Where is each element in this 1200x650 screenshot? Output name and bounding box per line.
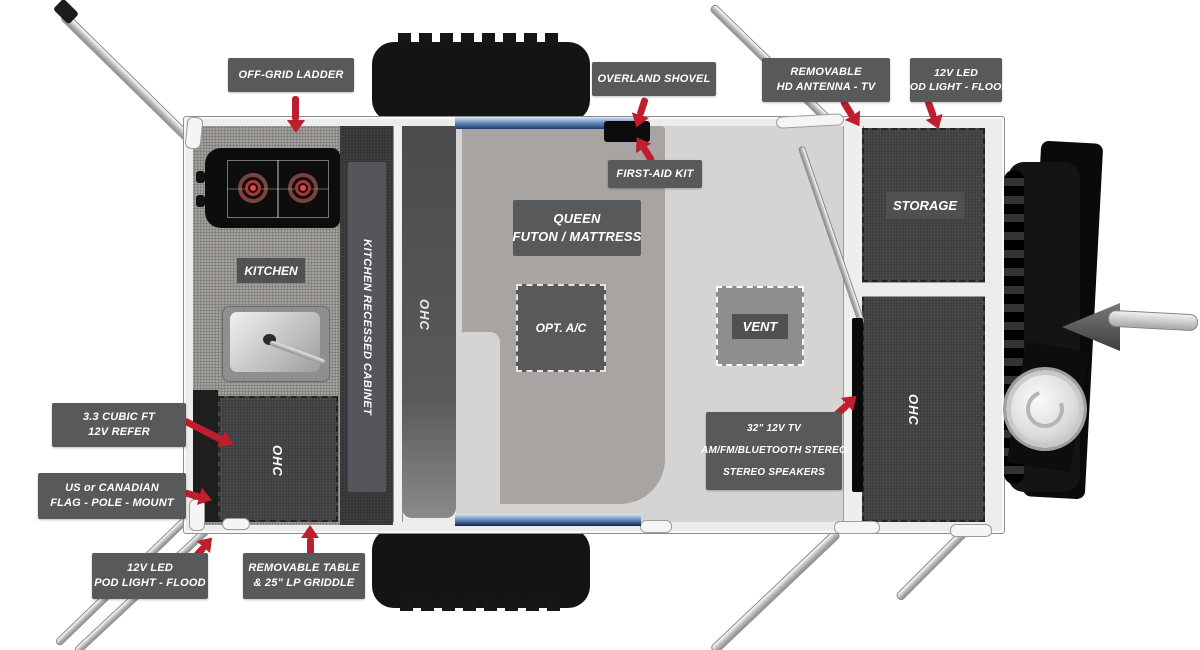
callout-text: 12V REFER (88, 425, 150, 440)
callout-text: REMOVABLE (790, 65, 861, 80)
vent-box: VENT (716, 286, 804, 366)
stove-burner-left (238, 173, 268, 203)
callout-text: HD ANTENNA - TV (777, 80, 876, 95)
arrow-antenna (843, 100, 858, 124)
vent-text: VENT (743, 319, 778, 334)
stove-burner-right (288, 173, 318, 203)
callout-overland-shovel: OVERLAND SHOVEL (592, 62, 716, 96)
ohc-rear-cabinet: OHC (862, 295, 985, 522)
kitchen-recessed-cabinet: KITCHEN RECESSED CABINET (340, 126, 393, 525)
callout-text: 32" 12V TV (747, 418, 801, 440)
callout-removable-antenna: REMOVABLE HD ANTENNA - TV (762, 58, 890, 102)
arrow-overland-shovel (637, 98, 646, 125)
bottom-tire (372, 528, 590, 608)
callout-text: AM/FM/BLUETOOTH STEREO (701, 440, 847, 462)
callout-pod-light-top: 12V LED POD LIGHT - FLOOD (910, 58, 1002, 102)
callout-pod-light-bottom: 12V LED POD LIGHT - FLOOD (92, 553, 208, 599)
storage-chip: STORAGE (886, 192, 964, 219)
ohc-galley-text: OHC (270, 432, 285, 490)
callout-text: STEREO SPEAKERS (723, 462, 825, 484)
ohc-galley-cabinet: OHC (218, 396, 338, 522)
kitchen-area-label: KITCHEN (237, 258, 305, 283)
arrow-pod-light-top (928, 100, 938, 126)
front-corner-jack (184, 116, 203, 149)
opt-ac-text: OPT. A/C (536, 321, 587, 335)
callout-text: FLAG - POLE - MOUNT (50, 496, 174, 511)
callout-text: OFF-GRID LADDER (238, 68, 343, 83)
callout-text: FIRST-AID KIT (616, 167, 693, 182)
bottom-mount-1 (222, 518, 250, 530)
callout-removable-table: REMOVABLE TABLE & 25" LP GRIDDLE (243, 553, 365, 599)
vent-chip: VENT (732, 314, 788, 339)
callout-text: 12V LED (934, 66, 978, 80)
callout-text: 3.3 CUBIC FT (83, 410, 155, 425)
stove-knob-2 (196, 195, 205, 207)
kitchen-recessed-cabinet-text: KITCHEN RECESSED CABINET (354, 170, 380, 484)
callout-refer: 3.3 CUBIC FT 12V REFER (52, 403, 186, 447)
queen-futon-label: QUEEN FUTON / MATTRESS (513, 200, 641, 256)
callout-text: REMOVABLE TABLE (248, 561, 359, 576)
off-grid-ladder-pole (59, 11, 200, 150)
ohc-mid-text: OHC (417, 284, 432, 346)
bottom-mount-4 (950, 524, 992, 537)
stove-knob-1 (196, 171, 205, 183)
callout-flag-pole: US or CANADIAN FLAG - POLE - MOUNT (38, 473, 186, 519)
hitch-handle (1108, 310, 1199, 332)
kitchen-text: KITCHEN (244, 264, 297, 278)
ohc-mid-cabinet: OHC (402, 126, 456, 518)
callout-first-aid-kit: FIRST-AID KIT (608, 160, 702, 188)
callout-text: OVERLAND SHOVEL (598, 72, 711, 87)
queen-line1: QUEEN (553, 210, 600, 228)
storage-cabinet: STORAGE (862, 128, 985, 282)
callout-off-grid-ladder: OFF-GRID LADDER (228, 58, 354, 92)
rear-support-pole-1 (710, 529, 842, 650)
bottom-tire-tread (400, 598, 568, 611)
callout-text: & 25" LP GRIDDLE (254, 576, 355, 591)
callout-text: POD LIGHT - FLOOD (903, 80, 1010, 94)
rear-cabinet-divider (862, 282, 985, 297)
floorplan-canvas: KITCHEN OHC KITCHEN RECESSED CABINET OHC… (0, 0, 1200, 650)
futon-floor-notch (456, 332, 500, 504)
callout-text: US or CANADIAN (65, 481, 159, 496)
callout-text: 12V LED (127, 561, 173, 576)
queen-line2: FUTON / MATTRESS (512, 228, 641, 246)
top-tire-tread (398, 33, 566, 46)
storage-text: STORAGE (893, 198, 957, 213)
led-strip-bottom (455, 514, 641, 526)
bottom-mount-3 (834, 521, 880, 534)
top-tire (372, 42, 590, 122)
ohc-rear-text: OHC (906, 379, 921, 441)
bottom-mount-2 (640, 520, 672, 533)
callout-text: POD LIGHT - FLOOD (94, 576, 206, 591)
callout-tv-stereo: 32" 12V TV AM/FM/BLUETOOTH STEREO STEREO… (706, 412, 842, 490)
opt-ac-box: OPT. A/C (516, 284, 606, 372)
rear-support-pole-2 (895, 529, 968, 602)
